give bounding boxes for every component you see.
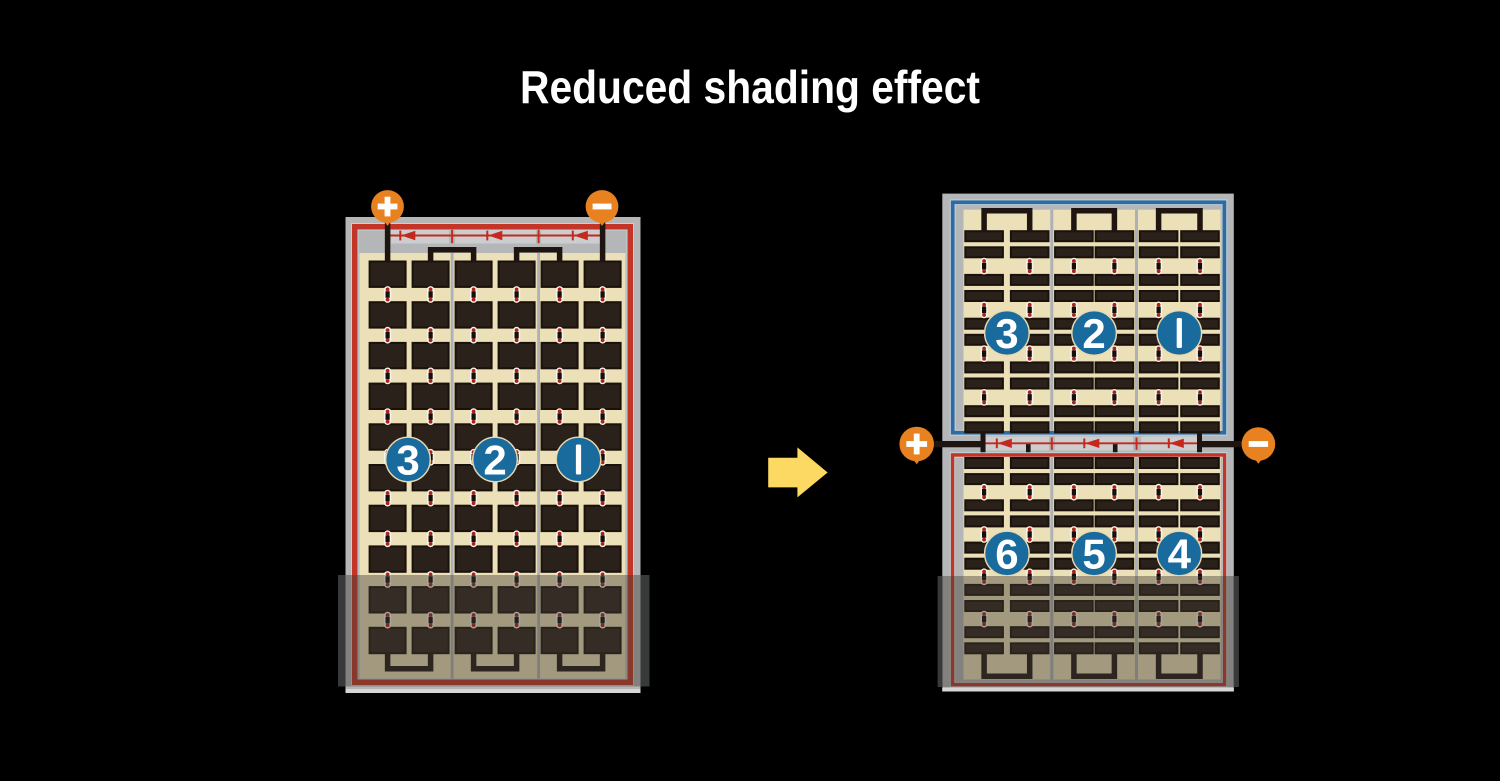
svg-text:3: 3	[396, 437, 419, 484]
svg-text:2: 2	[483, 437, 506, 484]
svg-text:3: 3	[995, 310, 1018, 357]
svg-text:4: 4	[1168, 531, 1192, 578]
svg-text:5: 5	[1082, 531, 1105, 578]
svg-text:2: 2	[1082, 310, 1105, 357]
svg-text:6: 6	[995, 531, 1018, 578]
svg-text:Reduced shading effect: Reduced shading effect	[520, 61, 980, 113]
